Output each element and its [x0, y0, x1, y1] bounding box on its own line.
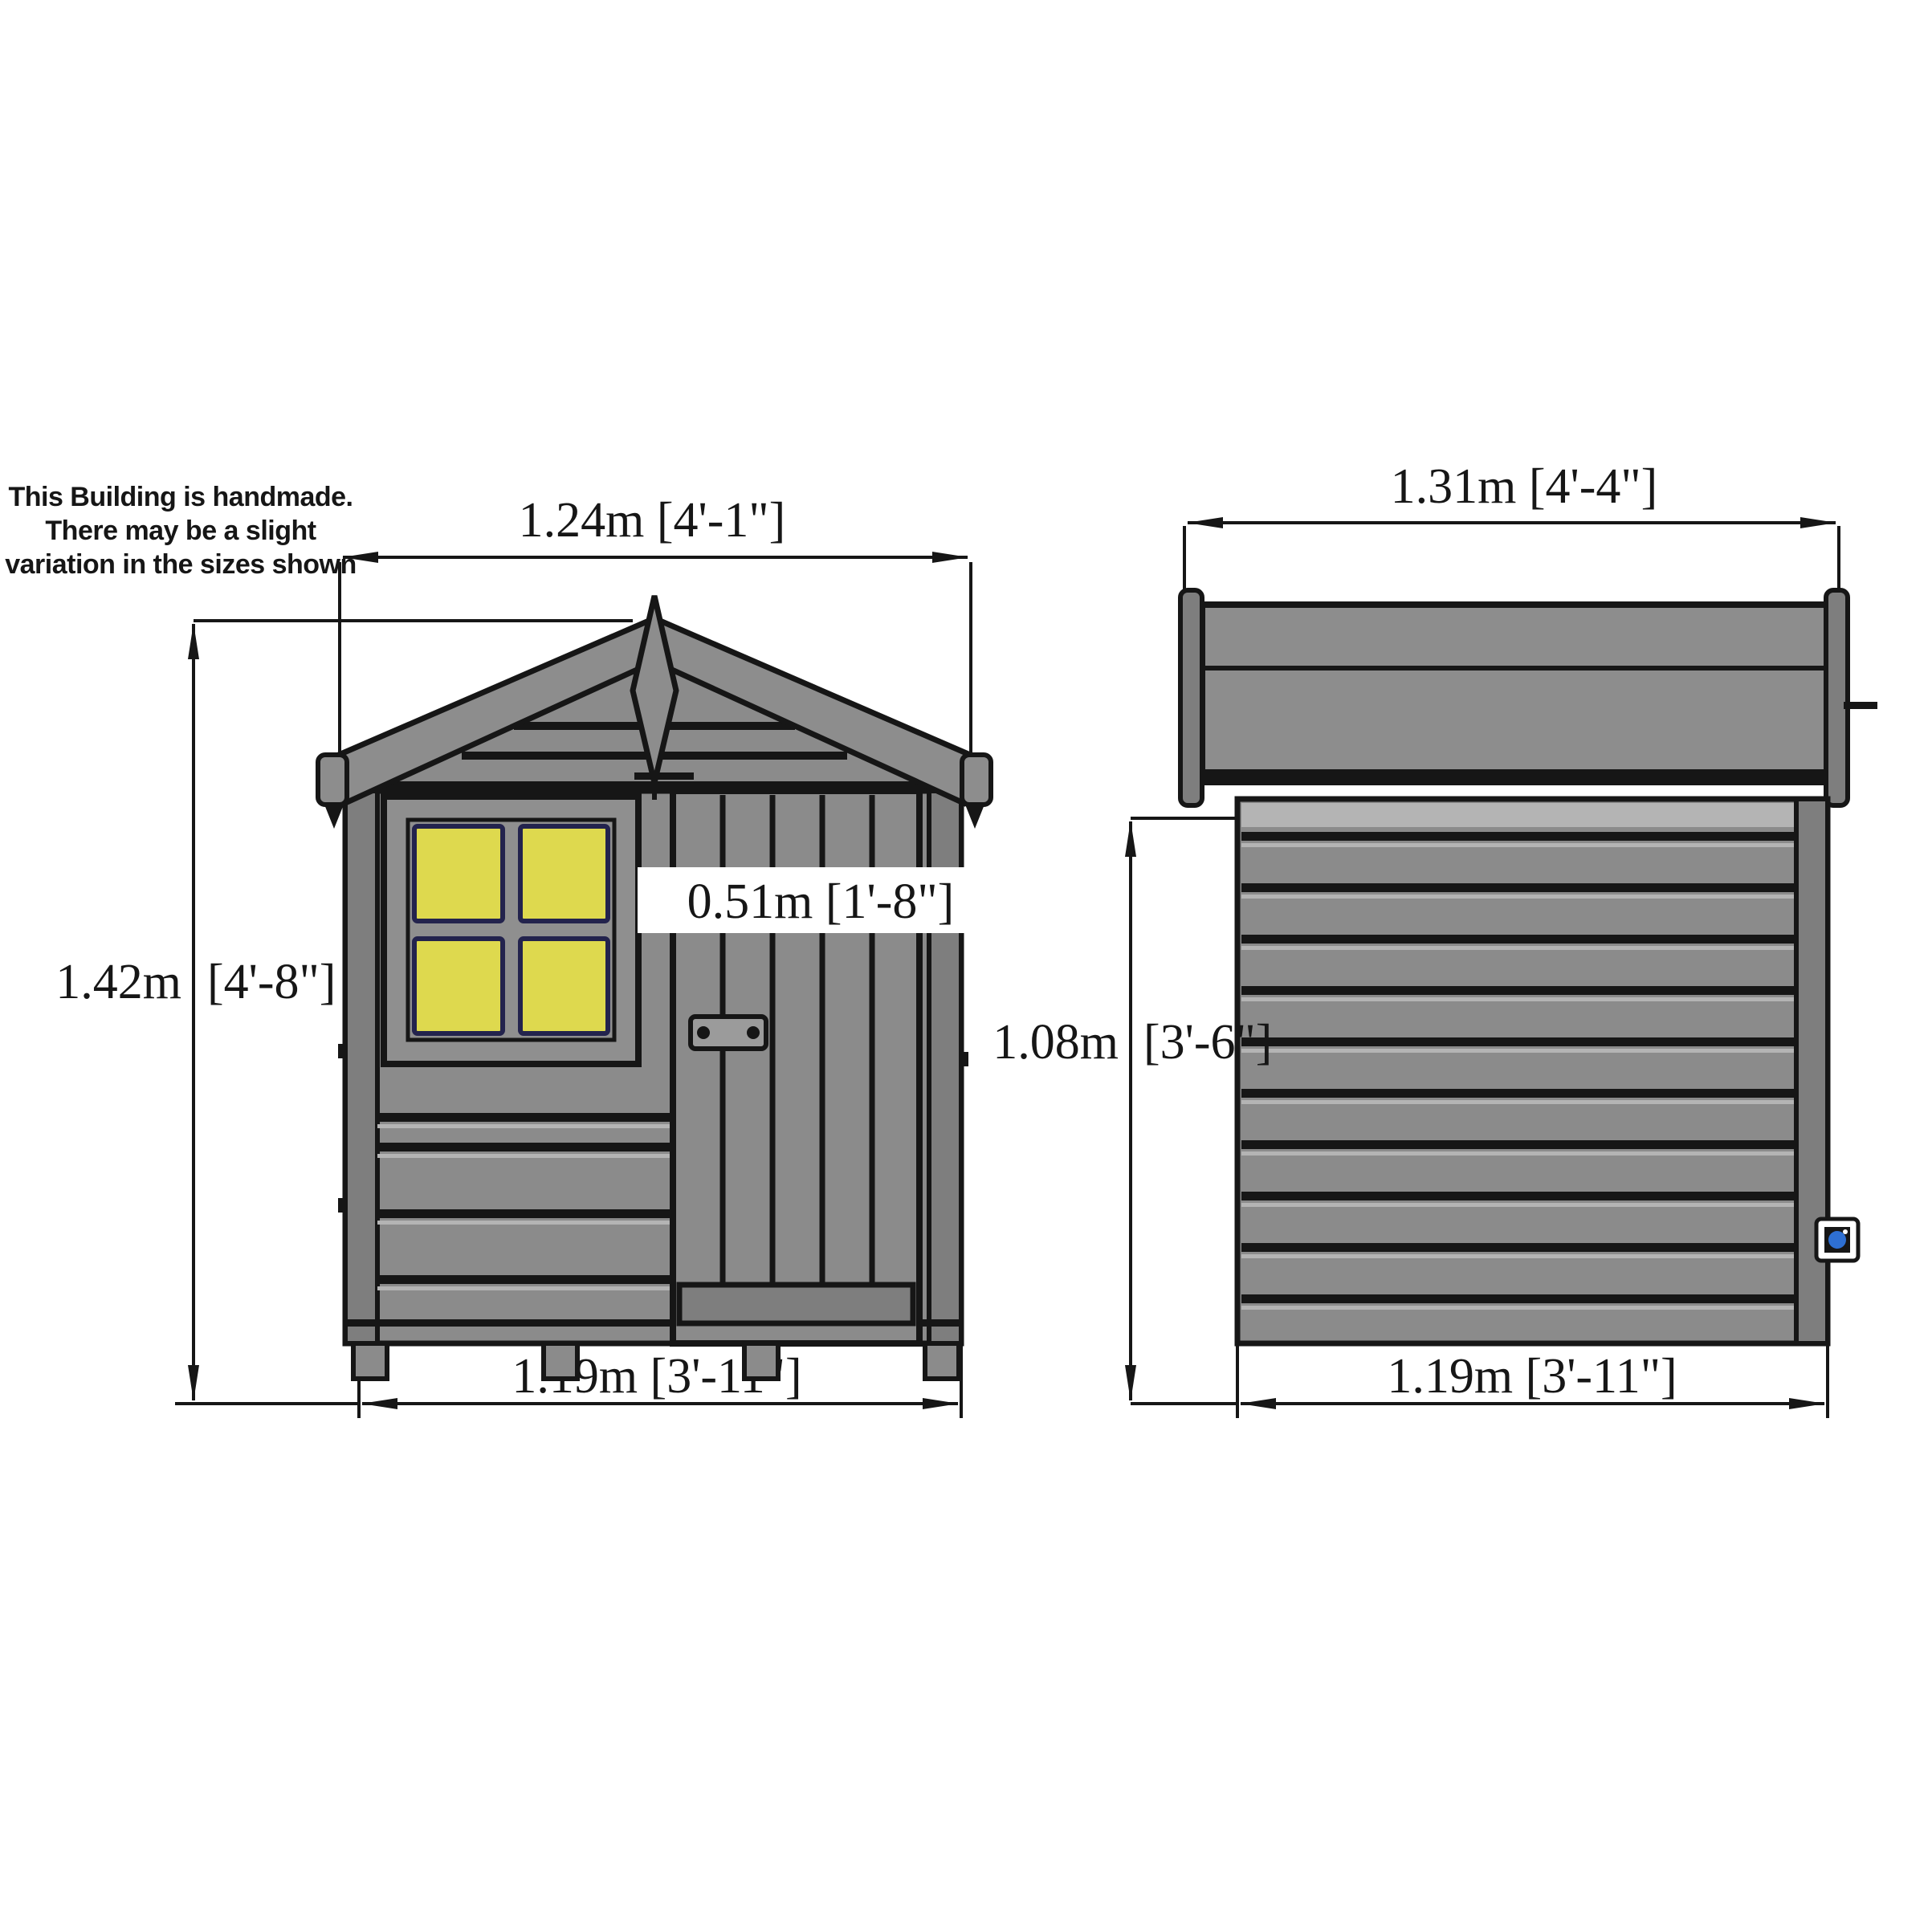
cladding-highlight	[1241, 1151, 1824, 1156]
cladding-highlight	[1241, 997, 1824, 1001]
door-handle-bolt	[747, 1026, 760, 1039]
cladding-line	[1241, 1192, 1824, 1200]
front-elevation: 0.51m [1'-8"]	[318, 596, 1004, 1379]
disclaimer-line-3: variation in the sizes shown	[5, 549, 357, 580]
side-roof-slab	[1202, 605, 1828, 775]
right-eave-end-cap	[962, 755, 991, 805]
window-pane-bottom-right	[520, 939, 608, 1033]
cladding-line	[1241, 1243, 1824, 1252]
side-height-label-imperial: [3'-6"]	[1143, 1015, 1272, 1070]
side-right-bargeboard-end	[1826, 590, 1848, 805]
right-eave-drip	[965, 805, 984, 829]
cladding-line	[1241, 1037, 1824, 1046]
side-wall-top-strip	[1241, 803, 1824, 827]
door-handle-bolt	[697, 1026, 710, 1039]
gable-plank-dash	[634, 772, 694, 780]
front-height-label-imperial: [4'-8"]	[207, 955, 336, 1009]
cladding-line	[1241, 935, 1824, 944]
cladding-highlight	[1241, 1306, 1824, 1310]
plaque-highlight-dot	[1843, 1229, 1848, 1234]
disclaimer-line-2: There may be a slight	[45, 516, 316, 546]
brand-plaque	[1816, 1219, 1858, 1261]
bearer-foot	[353, 1343, 387, 1379]
front-left-corner-trim	[345, 791, 377, 1343]
cladding-highlight	[377, 1154, 673, 1158]
cladding-line	[1241, 1089, 1824, 1098]
plaque-blue-emblem	[1828, 1231, 1846, 1249]
handmade-disclaimer: This Building is handmade. There may be …	[5, 482, 357, 580]
side-height-label-metric: 1.08m	[992, 1015, 1119, 1070]
cladding-line	[377, 1143, 673, 1151]
cladding-highlight	[377, 1124, 673, 1128]
window-pane-top-left	[414, 826, 503, 921]
cladding-highlight	[1241, 946, 1824, 950]
side-roof-depth-label: 1.31m [4'-4"]	[1391, 459, 1658, 514]
cladding-highlight	[1241, 1100, 1824, 1104]
cladding-highlight	[377, 1221, 673, 1225]
front-height-label-metric: 1.42m	[55, 955, 181, 1009]
dimension-diagram: This Building is handmade. There may be …	[0, 0, 1932, 1932]
right-trim-notch-2	[960, 1052, 968, 1066]
window-pane-top-right	[520, 826, 608, 921]
front-roof-width-label: 1.24m [4'-1"]	[519, 493, 786, 548]
cladding-line	[377, 1113, 673, 1122]
door-bottom-rail	[679, 1285, 913, 1323]
cladding-line	[377, 1275, 673, 1284]
side-roof-bottom-edge	[1196, 769, 1833, 785]
window-pane-bottom-left	[414, 939, 503, 1033]
side-base-depth-label: 1.19m [3'-11"]	[1387, 1349, 1677, 1404]
cladding-line	[1241, 1294, 1824, 1303]
side-elevation	[1180, 590, 1877, 1343]
left-trim-notch-2	[338, 1198, 346, 1213]
left-eave-end-cap	[318, 755, 347, 805]
cladding-line	[377, 1209, 673, 1218]
bearer-foot	[544, 1343, 577, 1379]
cladding-line	[1241, 832, 1824, 841]
bearer-foot	[925, 1343, 959, 1379]
cladding-highlight	[1241, 1254, 1824, 1258]
cladding-line	[1241, 883, 1824, 892]
door-width-label: 0.51m [1'-8"]	[687, 874, 955, 929]
cladding-highlight	[1241, 843, 1824, 847]
playhouse-elevation-drawing: This Building is handmade. There may be …	[0, 0, 1932, 1932]
cladding-highlight	[1241, 1203, 1824, 1207]
cladding-highlight	[1241, 1049, 1824, 1053]
cladding-highlight	[377, 1286, 673, 1290]
bearer-foot	[744, 1343, 778, 1379]
cladding-line	[1241, 986, 1824, 995]
left-eave-drip	[324, 805, 344, 829]
side-roof-bracket-tick	[1844, 702, 1877, 709]
left-trim-notch-1	[338, 1044, 346, 1058]
cladding-line	[1241, 1140, 1824, 1149]
side-wall	[1237, 799, 1828, 1343]
cladding-highlight	[1241, 895, 1824, 899]
disclaimer-line-1: This Building is handmade.	[8, 482, 353, 512]
window	[384, 797, 638, 1064]
side-left-bargeboard-end	[1180, 590, 1202, 805]
